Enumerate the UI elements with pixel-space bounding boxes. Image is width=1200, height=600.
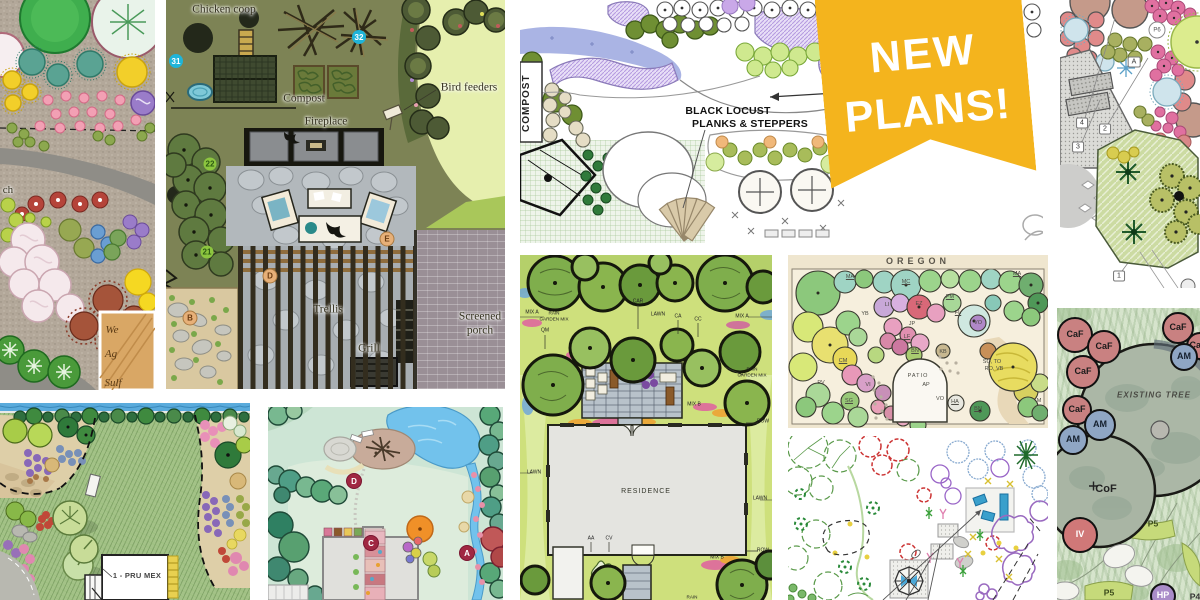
oregon-plan-illustration <box>788 255 1048 428</box>
tile-oregon-plan[interactable]: OREGON MA MC MA PM YB LI EZ FL JP VO LF … <box>788 255 1048 428</box>
cad-plan-illustration <box>788 436 1048 600</box>
caf-plan-illustration <box>1057 308 1200 600</box>
perennial-plan-illustration <box>0 0 155 390</box>
tile-existing-tree-plan[interactable]: CaF CaF CaF CaF CaF AM CaF AM AM EXISTIN… <box>1057 308 1200 600</box>
screened-porch-area <box>414 230 505 389</box>
deck-plan-illustration <box>1060 0 1200 288</box>
banner-line-2: PLANS! <box>843 80 1013 143</box>
tile-deck-garden-plan[interactable]: P6 4 2 3 1 A <box>1060 0 1200 288</box>
trellis-structure <box>238 246 414 389</box>
pond-plan-illustration <box>268 407 503 600</box>
tile-perennial-bed-plan[interactable]: ch We Ag Sulf <box>0 0 155 390</box>
residence-plan-illustration <box>520 255 772 600</box>
tile-residence-plan[interactable]: MIX A RAIN GARDEN MIX QM CAR LAWN CA CC … <box>520 255 772 600</box>
prumex-plan-illustration <box>0 403 250 600</box>
tile-chicken-coop-plan[interactable]: Chicken coop Compost Fireplace Bird feed… <box>166 0 505 389</box>
plans-collage: ch We Ag Sulf <box>0 0 1200 600</box>
tile-cad-plan[interactable] <box>788 436 1048 600</box>
tile-pru-mex-plan[interactable]: 1 - PRU MEX <box>0 403 250 600</box>
banner-line-1: NEW <box>868 26 978 84</box>
tile-pond-plan[interactable]: D C A <box>268 407 503 600</box>
